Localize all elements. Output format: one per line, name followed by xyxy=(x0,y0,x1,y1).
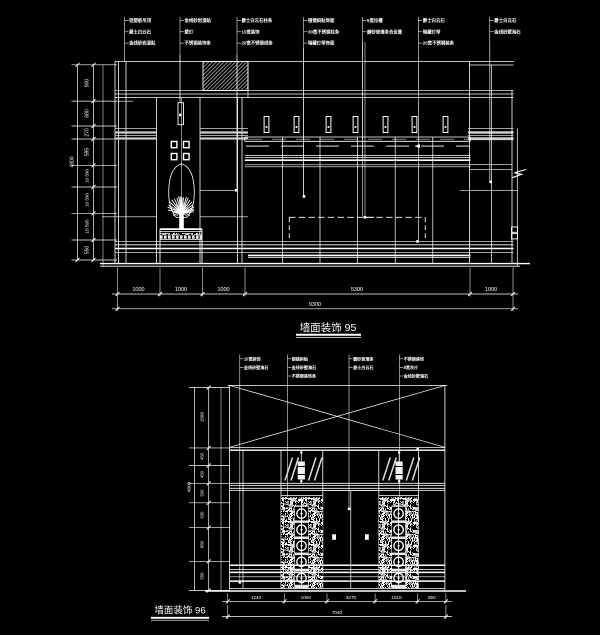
svg-text:595: 595 xyxy=(85,148,91,157)
svg-text:银镜斜贴饰面: 银镜斜贴饰面 xyxy=(308,17,335,24)
svg-text:1240: 1240 xyxy=(251,595,262,600)
svg-text:1000: 1000 xyxy=(132,287,144,293)
svg-text:不锈钢装饰条: 不锈钢装饰条 xyxy=(185,40,212,47)
svg-text:金线砂壁海石: 金线砂壁海石 xyxy=(493,28,521,35)
svg-text:金线砂壁海石: 金线砂壁海石 xyxy=(243,364,269,370)
svg-text:金线砂岩湿贴: 金线砂岩湿贴 xyxy=(128,40,156,47)
svg-text:10宽装饰: 10宽装饰 xyxy=(242,28,261,35)
svg-text:1000: 1000 xyxy=(175,287,187,293)
svg-text:9300: 9300 xyxy=(309,302,321,308)
svg-text:680: 680 xyxy=(85,109,91,118)
svg-text:暗藏灯带饰面: 暗藏灯带饰面 xyxy=(308,40,335,47)
svg-text:630: 630 xyxy=(200,511,205,519)
svg-text:450: 450 xyxy=(200,452,205,460)
svg-text:暗藏灯带: 暗藏灯带 xyxy=(423,28,441,35)
svg-text:爵士白云石: 爵士白云石 xyxy=(494,17,517,24)
svg-text:铝塑板吊顶: 铝塑板吊顶 xyxy=(129,17,152,24)
svg-text:银镜斜贴: 银镜斜贴 xyxy=(292,355,309,361)
svg-text:不锈钢装饰: 不锈钢装饰 xyxy=(404,355,424,361)
svg-text:不锈钢装饰条: 不锈钢装饰条 xyxy=(292,373,317,379)
svg-text:1580: 1580 xyxy=(200,411,205,422)
svg-text:爵士白云石柱条: 爵士白云石柱条 xyxy=(242,17,273,24)
svg-text:1010: 1010 xyxy=(391,595,402,600)
svg-text:1000: 1000 xyxy=(301,595,312,600)
svg-text:1000: 1000 xyxy=(485,287,497,293)
svg-text:550: 550 xyxy=(85,246,91,255)
svg-text:壁灯: 壁灯 xyxy=(185,28,194,35)
svg-text:7040: 7040 xyxy=(332,610,343,615)
svg-text:10 590: 10 590 xyxy=(85,169,90,183)
svg-text:20宽不锈钢线条: 20宽不锈钢线条 xyxy=(242,40,274,47)
svg-text:550: 550 xyxy=(428,595,436,600)
svg-text:金线砂壁海石: 金线砂壁海石 xyxy=(291,364,317,370)
svg-text:20宽不锈钢装条: 20宽不锈钢装条 xyxy=(423,40,455,47)
svg-text:墙面装饰 96: 墙面装饰 96 xyxy=(154,605,205,617)
svg-text:磨砂玻璃条: 磨砂玻璃条 xyxy=(352,355,374,361)
svg-text:550: 550 xyxy=(200,572,205,580)
svg-text:500: 500 xyxy=(200,489,205,497)
svg-text:270: 270 xyxy=(85,128,91,137)
svg-text:5300: 5300 xyxy=(351,287,363,293)
svg-text:10 590: 10 590 xyxy=(85,193,90,207)
svg-text:10 595: 10 595 xyxy=(85,219,90,233)
svg-text:5宽拉槽: 5宽拉槽 xyxy=(367,17,383,24)
svg-text:10宽装饰: 10宽装饰 xyxy=(244,355,261,361)
svg-text:30宽不锈钢柱条: 30宽不锈钢柱条 xyxy=(308,28,340,35)
svg-text:爵士白云石: 爵士白云石 xyxy=(423,17,446,24)
svg-text:1000: 1000 xyxy=(217,287,229,293)
svg-text:金线砂岩湿贴: 金线砂岩湿贴 xyxy=(184,17,212,24)
svg-text:900: 900 xyxy=(85,79,91,88)
svg-text:4800: 4800 xyxy=(70,156,76,167)
svg-text:860: 860 xyxy=(200,540,205,548)
svg-text:450: 450 xyxy=(200,470,205,478)
svg-text:3270: 3270 xyxy=(346,595,357,600)
svg-text:墙面装饰 95: 墙面装饰 95 xyxy=(300,321,357,334)
svg-text:爵士白云石: 爵士白云石 xyxy=(353,364,373,370)
svg-text:磨砂玻璃条合设置: 磨砂玻璃条合设置 xyxy=(366,28,403,35)
svg-text:8宽灰片: 8宽灰片 xyxy=(404,364,419,370)
svg-text:金线砂壁海石: 金线砂壁海石 xyxy=(403,373,429,379)
svg-text:爵士白云石: 爵士白云石 xyxy=(129,28,152,35)
svg-text:4800: 4800 xyxy=(186,481,192,492)
